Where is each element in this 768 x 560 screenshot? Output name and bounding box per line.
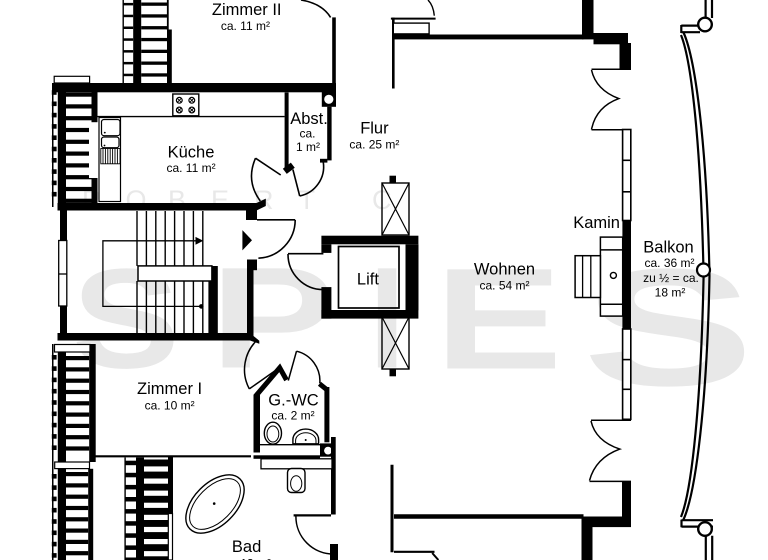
svg-text:ca. 11 m²: ca. 11 m² <box>166 161 215 175</box>
svg-text:Flur: Flur <box>360 120 389 138</box>
svg-text:ca. 54 m²: ca. 54 m² <box>479 279 529 293</box>
svg-text:zu ½ = ca.: zu ½ = ca. <box>643 271 699 285</box>
svg-text:ca.: ca. <box>299 127 315 141</box>
svg-text:Zimmer II: Zimmer II <box>212 1 282 19</box>
svg-text:ca. 11 m²: ca. 11 m² <box>221 19 270 33</box>
svg-text:ca. 25 m²: ca. 25 m² <box>349 138 399 152</box>
svg-text:Balkon: Balkon <box>643 239 693 257</box>
svg-text:ca. 13 m²: ca. 13 m² <box>221 557 271 560</box>
svg-text:Zimmer I: Zimmer I <box>137 380 202 398</box>
svg-text:Lift: Lift <box>357 270 379 288</box>
svg-text:Wohnen: Wohnen <box>474 261 535 279</box>
svg-text:Bad: Bad <box>232 538 261 556</box>
svg-text:G.-WC: G.-WC <box>268 392 318 410</box>
svg-text:Abst.: Abst. <box>290 110 328 128</box>
svg-text:ca. 2 m²: ca. 2 m² <box>271 409 314 423</box>
svg-text:S: S <box>72 240 180 399</box>
svg-text:18 m²: 18 m² <box>655 286 686 300</box>
svg-text:ca. 36 m²: ca. 36 m² <box>644 256 694 270</box>
svg-text:Kamin: Kamin <box>573 214 620 232</box>
svg-text:1 m²: 1 m² <box>296 140 320 154</box>
svg-text:ca. 10 m²: ca. 10 m² <box>145 399 195 413</box>
svg-text:Küche: Küche <box>168 144 215 162</box>
